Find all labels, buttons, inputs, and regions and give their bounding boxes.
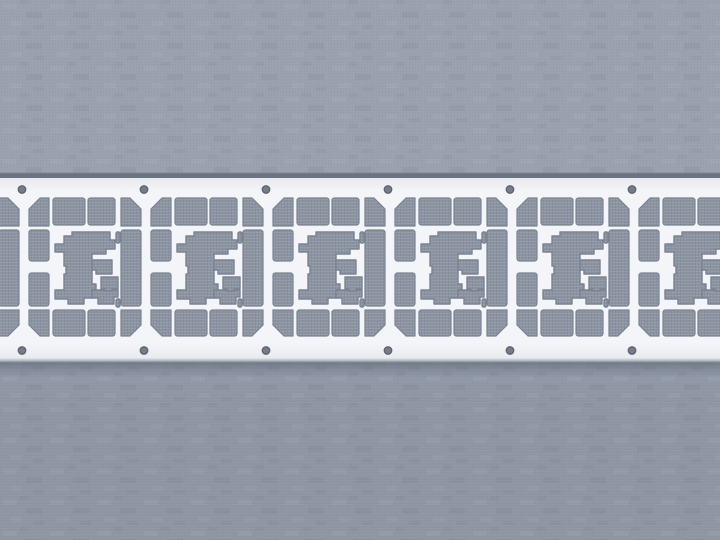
strip-top-edge-soft	[0, 172, 720, 173]
strip-drop-shadow	[0, 361, 720, 378]
leadframe-photo	[0, 0, 720, 540]
strip-bottom-edge-dark	[0, 361, 720, 363]
lead-frame-strip	[0, 172, 720, 362]
strip-top-edge	[0, 173, 720, 178]
